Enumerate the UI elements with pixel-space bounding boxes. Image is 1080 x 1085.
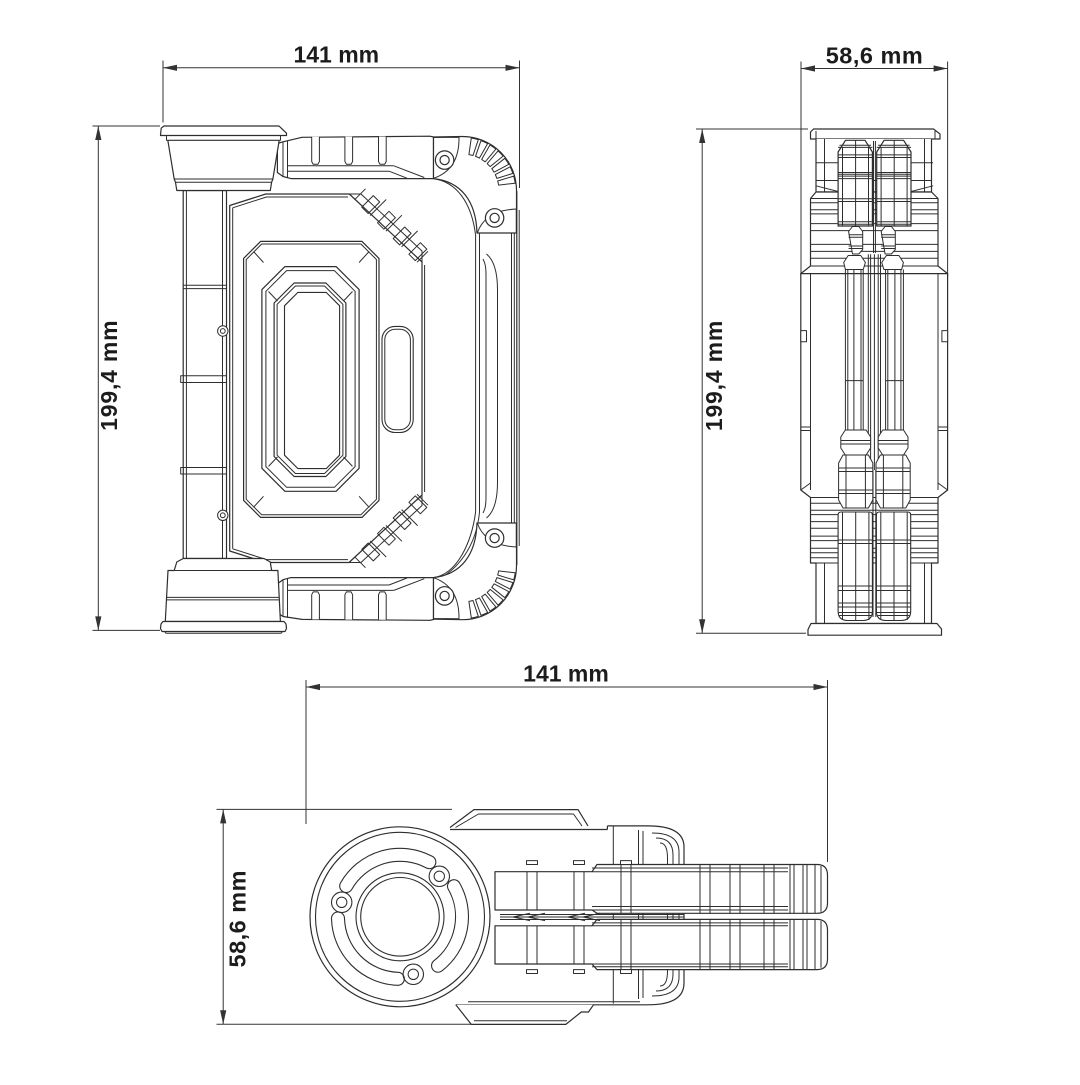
svg-text:199,4 mm: 199,4 mm: [701, 320, 727, 431]
svg-text:141 mm: 141 mm: [293, 42, 379, 68]
svg-text:58,6 mm: 58,6 mm: [225, 870, 251, 968]
svg-text:141 mm: 141 mm: [523, 661, 609, 687]
svg-text:199,4 mm: 199,4 mm: [96, 320, 122, 431]
svg-text:58,6 mm: 58,6 mm: [826, 42, 924, 68]
